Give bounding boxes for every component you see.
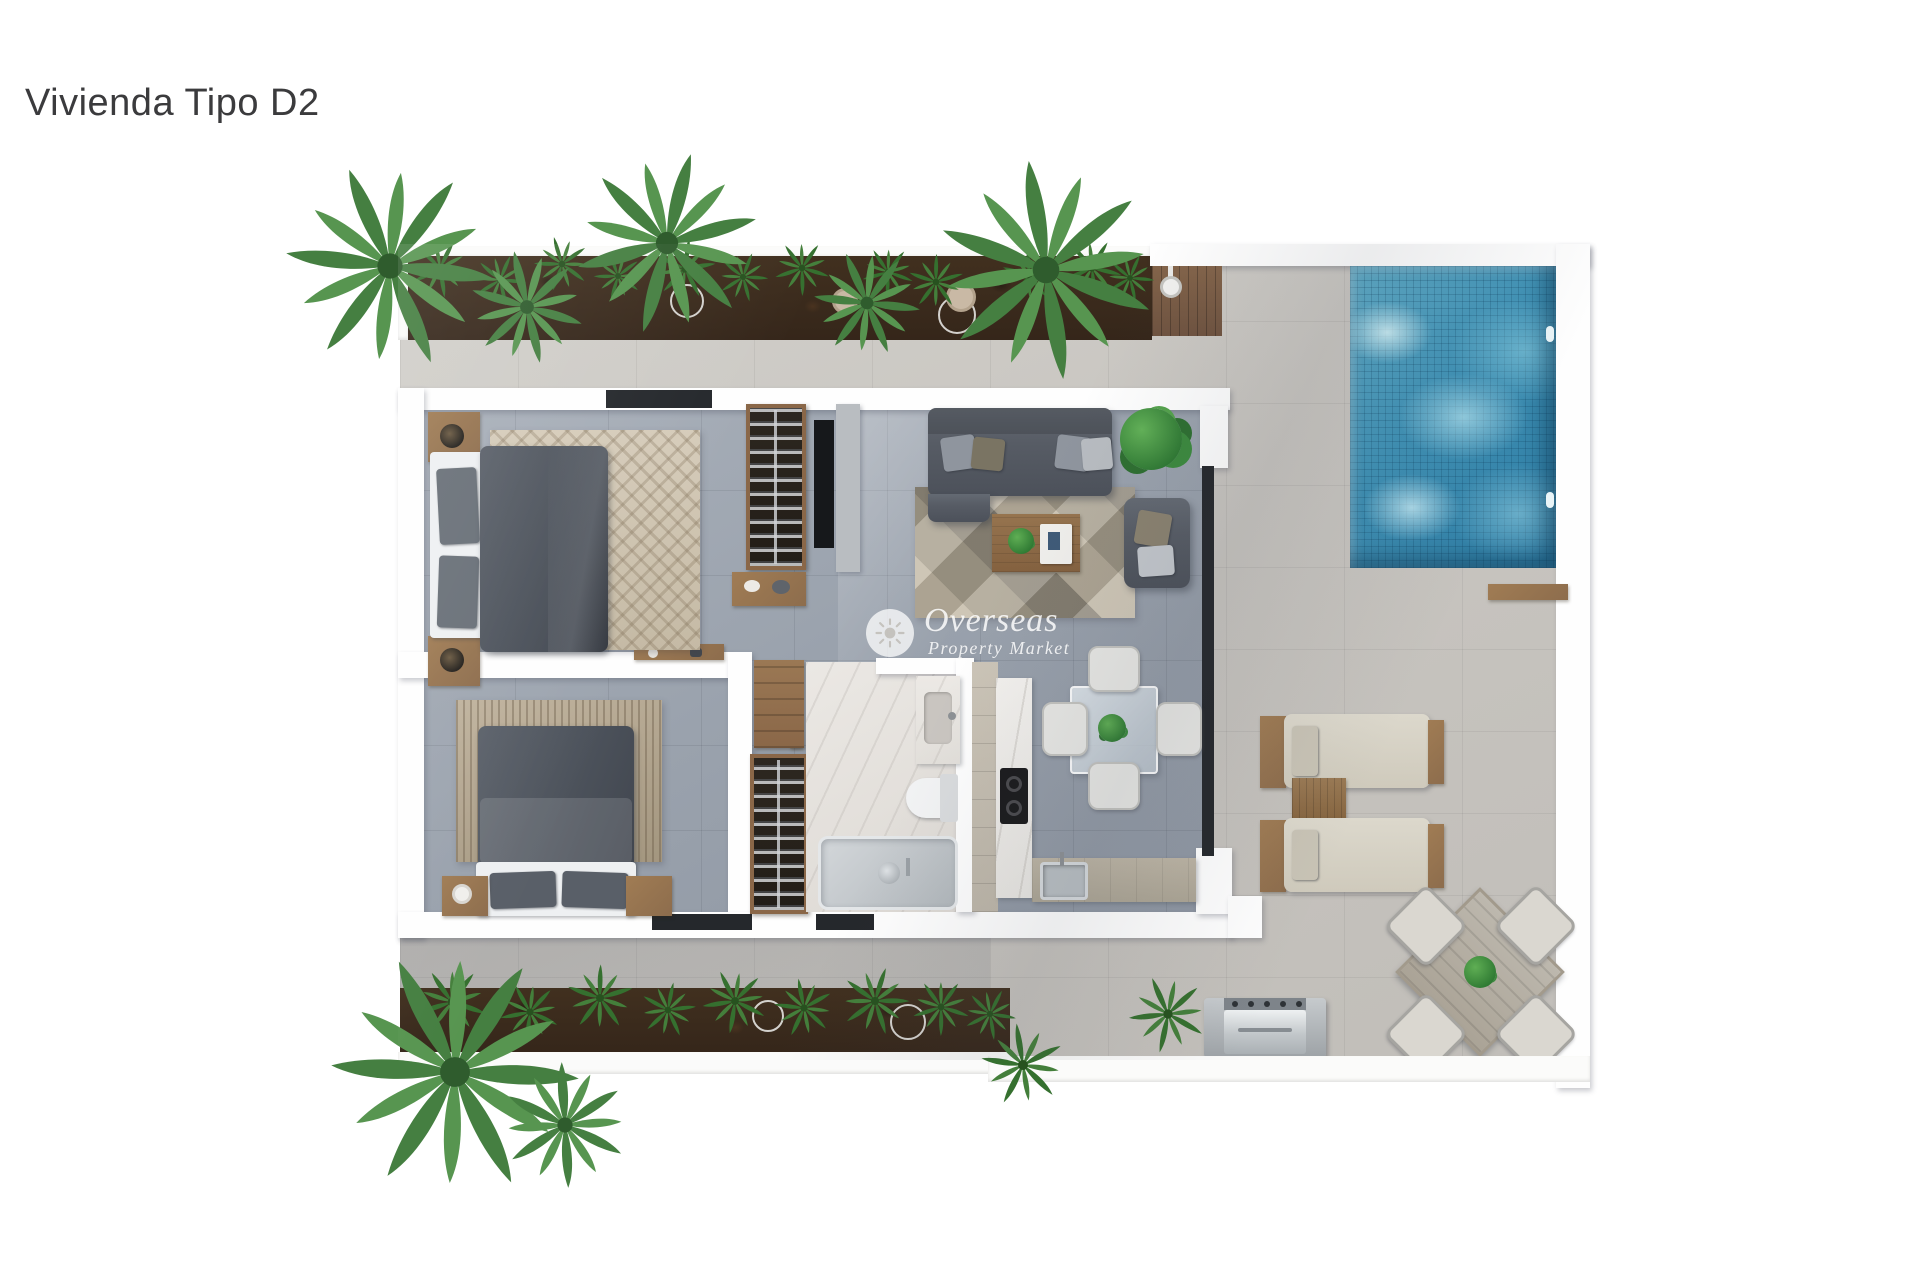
kitchen-sink (1040, 862, 1088, 900)
cooktop-burner (1006, 800, 1022, 816)
pool-jet (1546, 492, 1554, 508)
lounger2-foot (1428, 824, 1444, 888)
terrace-bush (1126, 972, 1210, 1056)
living-plant-fiddle (1120, 408, 1182, 470)
sofa-pillow (1081, 437, 1114, 471)
armchair-pillow (1133, 509, 1172, 548)
fern-plant (978, 1020, 1068, 1110)
sun-icon-glyph (872, 615, 908, 651)
pool-bench (1488, 584, 1568, 600)
pool-jet (1546, 326, 1554, 342)
wall-north (398, 388, 1230, 410)
palm-tree (572, 148, 762, 338)
watermark-text: Overseas Property Market (924, 606, 1070, 659)
bedroom2-pillow (489, 871, 556, 909)
palm-tree (282, 158, 498, 374)
bedroom1-pillows (437, 555, 479, 628)
sink-faucet (948, 712, 956, 720)
dining-centerpiece-plant (1098, 714, 1126, 742)
linen-closet (754, 660, 804, 748)
watermark-tagline: Property Market (928, 638, 1070, 659)
wardrobe-rail (774, 410, 777, 564)
bathroom-window (816, 914, 874, 930)
tv-screen (814, 420, 834, 548)
right-boundary-wall (1556, 244, 1590, 1088)
wall-kitchen-se-corner (1196, 848, 1232, 914)
fern-plant (638, 980, 698, 1040)
tub-shower-head (878, 862, 900, 884)
dining-chair-north (1088, 646, 1140, 692)
armchair-pillow (1137, 545, 1175, 577)
cooktop-burner (1006, 776, 1022, 792)
sofa-pillow (970, 436, 1005, 471)
bedroom2-nightstand-right (626, 876, 672, 916)
palm-tree-small (812, 248, 922, 358)
palm-tree-small (468, 248, 586, 366)
sliding-glass-door-track (1202, 466, 1214, 856)
outdoor-shower-deck (1152, 266, 1222, 336)
kitchen-wood-strip (972, 662, 998, 912)
bbq-lid (1224, 1010, 1306, 1054)
palm-tree-small (500, 1060, 630, 1190)
coffee-table-plant (1008, 528, 1034, 554)
lounger-pillow (1292, 830, 1318, 880)
lounger2-head (1260, 820, 1286, 892)
watermark-brand: Overseas (924, 606, 1070, 636)
wardrobe-rail (777, 760, 780, 908)
bedroom1-lamp-top (440, 424, 464, 448)
bedroom2-pillow (561, 871, 628, 909)
bedroom1-bed (480, 446, 608, 652)
lounger-side-table (1292, 778, 1346, 822)
dining-chair-east (1156, 702, 1202, 756)
page-title: Vivienda Tipo D2 (25, 82, 320, 125)
outdoor-table-plant (1464, 956, 1496, 988)
desk-decor (772, 580, 790, 594)
bedroom2-window (652, 914, 752, 930)
fern-plant (772, 976, 836, 1040)
sun-icon (866, 609, 914, 657)
wall-living-ne-corner (1200, 406, 1228, 468)
bedroom1-lamp-bottom (440, 648, 464, 672)
nightstand-decor (452, 884, 472, 904)
entry-door (606, 390, 712, 408)
watermark: Overseas Property Market (866, 606, 1070, 659)
desk-decor (744, 580, 760, 592)
terrace-south-rim (988, 1056, 1590, 1082)
bedroom1-desk (732, 572, 806, 606)
lounger1-head (1260, 716, 1286, 788)
bedroom1-pillows (436, 467, 480, 545)
bbq-knobs (1232, 1001, 1238, 1007)
floorplan-canvas: Vivienda Tipo D2 (0, 0, 1920, 1280)
toilet-tank (940, 774, 958, 822)
wall-se-pillar (1228, 896, 1262, 938)
sofa-chaise (928, 494, 990, 522)
wall-bedroom2-east (728, 652, 752, 916)
coffee-table-book-cover (1048, 532, 1060, 550)
dining-chair-south (1088, 762, 1140, 810)
bbq-handle (1238, 1028, 1292, 1032)
kitchen-faucet (1060, 852, 1064, 866)
shower-head (1160, 276, 1182, 298)
dining-chair-west (1042, 702, 1088, 756)
tv-wall-panel (836, 404, 860, 572)
tub-faucet (906, 858, 910, 876)
lounger1-foot (1428, 720, 1444, 784)
fern-plant (838, 964, 912, 1038)
pool-top-wall (1150, 244, 1590, 266)
swimming-pool (1350, 266, 1556, 568)
lounger-pillow (1292, 726, 1318, 776)
palm-tree (932, 156, 1160, 384)
fern-plant (700, 966, 770, 1036)
